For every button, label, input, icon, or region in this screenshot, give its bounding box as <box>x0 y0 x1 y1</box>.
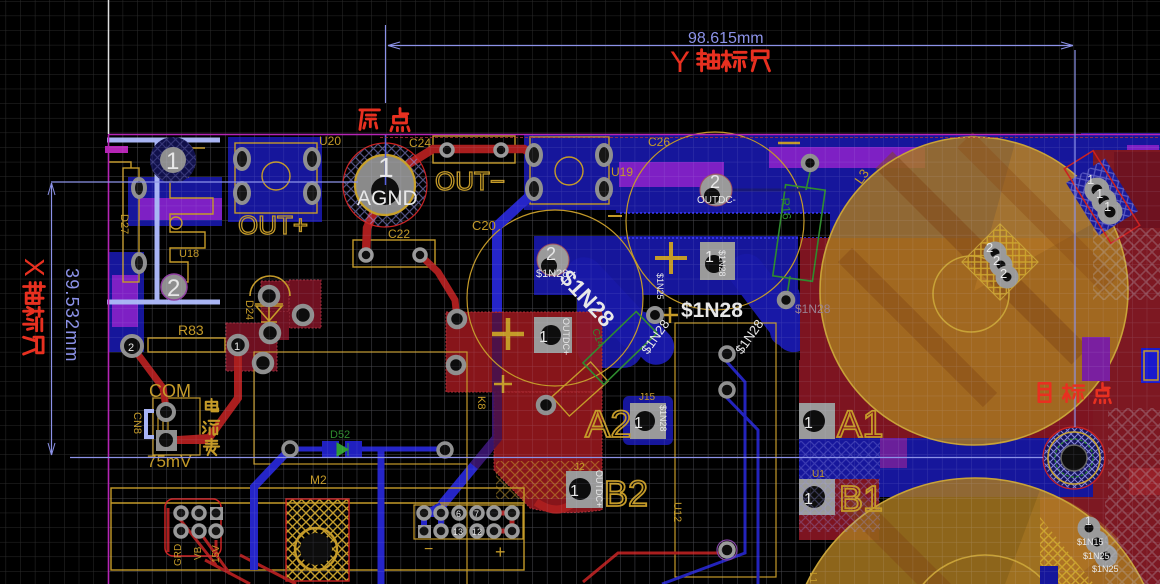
svg-text:98.615mm: 98.615mm <box>688 30 764 47</box>
svg-text:X: X <box>19 258 50 277</box>
svg-text:39.532mm: 39.532mm <box>62 268 82 363</box>
svg-text:Y: Y <box>670 46 690 79</box>
